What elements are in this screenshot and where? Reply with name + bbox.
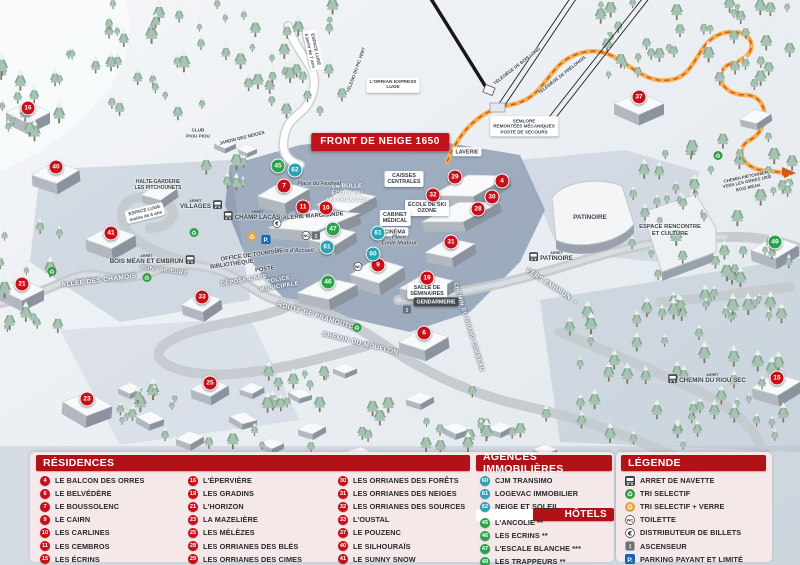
residence-label: LES ORRIANES DES NEIGES: [353, 489, 457, 498]
residence-number: 25: [188, 528, 198, 538]
wc-icon: WC: [354, 262, 363, 271]
agence-label: CJM TRANSIMO: [495, 476, 553, 485]
hotel-label: L'ANCOLIE **: [495, 518, 543, 527]
recycle-green-icon: ♻: [48, 267, 57, 276]
residence-label: LE SUNNY SNOW: [353, 555, 416, 564]
residence-number: 28: [188, 541, 198, 551]
elevator-icon: ↕: [312, 231, 321, 240]
residences-header: RÉSIDENCES: [36, 455, 470, 471]
residence-label: LES ORRIANES DES SOURCES: [353, 502, 465, 511]
legende-label: ASCENSEUR: [640, 542, 687, 551]
svg-text:♻: ♻: [249, 234, 255, 241]
map-elevator-icon: ↕: [403, 301, 412, 319]
map-marker-19: 19: [420, 271, 435, 286]
legende-item-tri-selectif: ♻TRI SELECTIF: [625, 488, 690, 499]
parking-icon: P.: [262, 235, 271, 244]
residence-label: LE BELVÉDÈRE: [55, 489, 112, 498]
legende-item-distributeur-de-billets: €DISTRIBUTEUR DE BILLETS: [625, 527, 741, 538]
map-label-semlore: SEMLOREREMONTÉES MÉCANIQUESPOSTE DE SECO…: [490, 116, 558, 136]
map-wc-icon: WC: [302, 227, 311, 245]
residence-number: 29: [188, 554, 198, 564]
residence-item-les-orrianes-des-neiges: 31LES ORRIANES DES NEIGES: [338, 488, 457, 499]
map-marker-15: 15: [770, 371, 785, 386]
svg-text:WC: WC: [303, 234, 309, 238]
bus-stop-patinoire: ARRÊTPATINOIRE: [529, 252, 573, 262]
map-label-patinoire: PATINOIRE: [573, 214, 607, 222]
svg-text:↕: ↕: [627, 544, 632, 551]
recycle-green-icon: ♻: [190, 228, 199, 237]
recycle-green-icon: ♻: [143, 273, 152, 282]
legende-item-arret-de-navette: ARRET DE NAVETTE: [625, 475, 714, 486]
bus-stop-name: VILLAGES: [180, 204, 211, 210]
bus-icon: [625, 476, 635, 486]
bus-stop-name: CHAMP LACAS: [235, 215, 281, 221]
residence-item-les-crins: 15LES ÉCRINS: [40, 554, 100, 565]
residence-item-le-silhoura-s: 40LE SILHOURAÏS: [338, 541, 411, 552]
map-marker-33: 33: [195, 290, 210, 305]
map-elevator-icon: ↕: [312, 227, 321, 245]
map-marker-21: 21: [15, 277, 30, 292]
map-marker-60: 60: [366, 247, 381, 262]
map-label-caisses: CAISSESCENTRALES: [385, 171, 424, 187]
legende-label: ARRET DE NAVETTE: [640, 476, 714, 485]
hotel-label: LES ECRINS **: [495, 531, 548, 540]
map-marker-41: 41: [104, 226, 119, 241]
agence-item-neige-et-soleil: 62NEIGE ET SOLEIL: [480, 501, 559, 512]
map-marker-29: 29: [448, 170, 463, 185]
legende-label: TRI SELECTIF: [640, 489, 690, 498]
wc-icon: WC: [302, 231, 311, 240]
residence-label: LES CEMBROS: [55, 542, 110, 551]
residence-number: 32: [338, 502, 348, 512]
residence-number: 31: [338, 489, 348, 499]
resort-map-page: FRONT DE NEIGE 1650 RÉSIDENCES AGENCES I…: [0, 0, 800, 565]
residence-label: LES ÉCRINS: [55, 555, 100, 564]
hotel-item-l-ancolie: 45L'ANCOLIE **: [480, 517, 543, 528]
residence-item-le-belv-d-re: 6LE BELVÉDÈRE: [40, 488, 112, 499]
agences-header: AGENCES IMMOBILIÈRES: [476, 455, 612, 471]
map-label-halte-garderie: HALTE-GARDERIELES PITCHOUNETS: [135, 179, 182, 191]
front-de-neige-banner: FRONT DE NEIGE 1650: [311, 133, 449, 151]
residence-number: 6: [40, 489, 50, 499]
map-marker-45: 45: [271, 159, 286, 174]
residence-label: LES CARLINES: [55, 528, 110, 537]
agence-label: LOGEVAC IMMOBILIER: [495, 489, 578, 498]
residence-item-les-orrianes-des-cimes: 29LES ORRIANES DES CIMES: [188, 554, 302, 565]
svg-text:WC: WC: [355, 265, 361, 269]
agence-number: 60: [480, 476, 490, 486]
hotel-item-les-trappeurs: 49LES TRAPPEURS **: [480, 556, 566, 565]
residence-number: 4: [40, 476, 50, 486]
residence-item-le-balcon-des-orres: 4LE BALCON DES ORRES: [40, 475, 144, 486]
map-recycle-green-icon: ♻: [353, 319, 362, 337]
bus-stop-name: BOIS MÉAN ET EMBRUN: [110, 259, 184, 265]
bus-stop-villages: ARRÊTVILLAGES: [180, 200, 222, 210]
legende-item-parking-payant-et-limit: P.PARKING PAYANT ET LIMITÉ: [625, 554, 743, 565]
residence-item-le-boussolenc: 7LE BOUSSOLENC: [40, 501, 119, 512]
map-label-place: PlaceÉmile Modout: [381, 235, 416, 248]
svg-text:WC: WC: [627, 517, 634, 522]
legende-item-toilette: WCTOILETTE: [625, 514, 676, 525]
svg-text:♻: ♻: [715, 153, 721, 160]
map-recycle-green-icon: ♻: [143, 269, 152, 287]
wc-icon: WC: [625, 515, 635, 525]
map-marker-11: 11: [296, 200, 311, 215]
residence-item-les-carlines: 10LES CARLINES: [40, 527, 110, 538]
map-label-cabinet: CABINETMÉDICAL: [380, 210, 411, 226]
svg-text:♻: ♻: [191, 230, 197, 237]
map-marker-61: 61: [371, 226, 386, 241]
legende-item-ascenseur: ↕ASCENSEUR: [625, 541, 687, 552]
legende-label: DISTRIBUTEUR DE BILLETS: [640, 528, 741, 537]
residence-number: 30: [338, 476, 348, 486]
svg-text:€: €: [274, 222, 279, 228]
residence-item-les-m-l-zes: 25LES MÉLÈZES: [188, 527, 255, 538]
map-marker-16: 16: [21, 101, 36, 116]
bus-icon: [224, 211, 233, 220]
map-marker-4: 4: [495, 174, 510, 189]
bus-icon: [668, 374, 677, 383]
residence-label: L'HORIZON: [203, 502, 244, 511]
agence-number: 62: [480, 502, 490, 512]
hotel-number: 45: [480, 518, 490, 528]
parking-icon: P.: [625, 554, 635, 564]
residence-item-l-pervi-re: 16L'ÉPERVIÈRE: [188, 475, 252, 486]
recycle-green-icon: ♻: [353, 323, 362, 332]
recycle-green-icon: ♻: [714, 151, 723, 160]
map-label-place-du-festival: Place du Festival: [297, 181, 341, 187]
map-marker-62: 62: [288, 163, 303, 178]
residence-item-les-cembros: 11LES CEMBROS: [40, 541, 110, 552]
map-parking-icon: P.: [262, 231, 271, 249]
map-recycle-green-icon: ♻: [190, 224, 199, 242]
svg-text:P.: P.: [627, 557, 633, 564]
elevator-icon: ↕: [625, 541, 635, 551]
bus-stop-chemin-du-riou-sec: ARRÊTCHEMIN DU RIOU SEC: [668, 374, 746, 384]
map-label-club: CLUBPIOU PIOU: [186, 128, 210, 139]
bus-icon: [213, 200, 222, 209]
legende-header: LÉGENDE: [621, 455, 766, 471]
map-label-gendarmerie: GENDARMERIE: [414, 297, 459, 306]
hotel-number: 46: [480, 531, 490, 541]
map-marker-37: 37: [632, 90, 647, 105]
map-label-l-orrian-express: L'ORRIAN EXPRESSLUGE: [367, 78, 420, 93]
svg-text:♻: ♻: [354, 325, 360, 332]
hotel-label: L'ESCALE BLANCHE ***: [495, 544, 581, 553]
agence-item-logevac-immobilier: 61LOGEVAC IMMOBILIER: [480, 488, 578, 499]
residence-label: LES GRADINS: [203, 489, 254, 498]
residence-number: 37: [338, 528, 348, 538]
residence-number: 23: [188, 515, 198, 525]
map-marker-40: 40: [49, 160, 64, 175]
residences-title: RÉSIDENCES: [43, 457, 114, 469]
map-marker-30: 30: [485, 190, 500, 205]
map-recycle-green-icon: ♻: [714, 147, 723, 165]
residence-number: 40: [338, 541, 348, 551]
residence-label: LE CAIRN: [55, 515, 90, 524]
map-wc-icon: WC: [354, 258, 363, 276]
svg-text:♻: ♻: [144, 275, 150, 282]
map-marker-25: 25: [203, 376, 218, 391]
map-recycle-yellow-icon: ♻: [248, 228, 257, 246]
agence-label: NEIGE ET SOLEIL: [495, 502, 559, 511]
residence-number: 9: [40, 515, 50, 525]
agences-title: AGENCES IMMOBILIÈRES: [483, 451, 605, 475]
bus-stop-name: PATINOIRE: [540, 256, 573, 262]
svg-text:€: €: [627, 530, 632, 537]
map-label-espace-rencontre: ESPACE RENCONTREET CULTURE: [639, 224, 701, 238]
svg-text:P.: P.: [264, 237, 269, 244]
residence-number: 21: [188, 502, 198, 512]
hotel-item-l-escale-blanche: 47L'ESCALE BLANCHE ***: [480, 543, 581, 554]
residence-number: 16: [188, 476, 198, 486]
bus-stop-bois-m-an-et-embrun: ARRÊTBOIS MÉAN ET EMBRUN: [110, 255, 195, 265]
residence-number: 10: [40, 528, 50, 538]
hotel-number: 49: [480, 557, 490, 565]
residence-number: 15: [40, 554, 50, 564]
residence-label: LE BOUSSOLENC: [55, 502, 119, 511]
bus-stop-name: CHEMIN DU RIOU SEC: [679, 378, 746, 384]
residence-item-les-orrianes-des-for-ts: 30LES ORRIANES DES FORÊTS: [338, 475, 459, 486]
residence-item-les-orrianes-des-bl-s: 28LES ORRIANES DES BLÉS: [188, 541, 298, 552]
map-marker-10: 10: [319, 201, 334, 216]
map-marker-28: 28: [471, 202, 486, 217]
hotel-item-les-ecrins: 46LES ECRINS **: [480, 530, 548, 541]
residence-label: L'OUSTAL: [353, 515, 389, 524]
residence-number: 19: [188, 489, 198, 499]
residence-item-les-orrianes-des-sources: 32LES ORRIANES DES SOURCES: [338, 501, 465, 512]
map-marker-23: 23: [80, 392, 95, 407]
residence-label: LES ORRIANES DES FORÊTS: [353, 476, 459, 485]
recycle-yellow-icon: ♻: [248, 232, 257, 241]
legende-item-tri-selectif-verre: ♻TRI SELECTIF + VERRE: [625, 501, 725, 512]
residence-item-la-mazeli-re: 23LA MAZELIÈRE: [188, 514, 258, 525]
legende-label: TOILETTE: [640, 515, 676, 524]
map-marker-61: 61: [320, 240, 335, 255]
hotels-title: HÔTELS: [565, 509, 607, 520]
legende-title: LÉGENDE: [628, 457, 681, 469]
residence-number: 11: [40, 541, 50, 551]
map-label-laverie: LAVERIE: [453, 147, 482, 156]
svg-text:♻: ♻: [627, 490, 633, 498]
residence-item-l-oustal: 33L'OUSTAL: [338, 514, 389, 525]
svg-text:↕: ↕: [314, 234, 319, 240]
residence-label: LES ORRIANES DES BLÉS: [203, 542, 298, 551]
agence-number: 61: [480, 489, 490, 499]
residence-number: 41: [338, 554, 348, 564]
residence-label: L'ÉPERVIÈRE: [203, 476, 252, 485]
bus-icon: [185, 255, 194, 264]
elevator-icon: ↕: [403, 305, 412, 314]
recycle-green-icon: ♻: [625, 489, 635, 499]
map-recycle-green-icon: ♻: [48, 263, 57, 281]
residence-item-le-pouzenc: 37LE POUZENC: [338, 527, 401, 538]
eur-icon: €: [625, 528, 635, 538]
agence-item-cjm-transimo: 60CJM TRANSIMO: [480, 475, 553, 486]
residence-number: 33: [338, 515, 348, 525]
residence-label: LE SILHOURAÏS: [353, 542, 411, 551]
legende-label: TRI SELECTIF + VERRE: [640, 502, 725, 511]
bus-stop-champ-lacas: ARRÊTCHAMP LACAS: [224, 211, 281, 221]
residence-label: LES MÉLÈZES: [203, 528, 255, 537]
residence-item-le-cairn: 9LE CAIRN: [40, 514, 90, 525]
map-marker-6: 6: [417, 326, 432, 341]
residence-label: LE POUZENC: [353, 528, 401, 537]
bus-icon: [529, 252, 538, 261]
svg-text:♻: ♻: [49, 269, 55, 276]
residence-label: LA MAZELIÈRE: [203, 515, 258, 524]
residence-number: 7: [40, 502, 50, 512]
legende-label: PARKING PAYANT ET LIMITÉ: [640, 555, 743, 564]
map-marker-49: 49: [768, 235, 783, 250]
recycle-yellow-icon: ♻: [625, 502, 635, 512]
residence-label: LES ORRIANES DES CIMES: [203, 555, 302, 564]
hotel-label: LES TRAPPEURS **: [495, 557, 566, 565]
map-label-cole-de-ski: ÉCOLE DE SKIOZONE: [405, 200, 449, 216]
residence-item-les-gradins: 19LES GRADINS: [188, 488, 254, 499]
map-marker-46: 46: [321, 275, 336, 290]
map-marker-47: 47: [326, 222, 341, 237]
residence-item-l-horizon: 21L'HORIZON: [188, 501, 244, 512]
svg-text:♻: ♻: [627, 503, 633, 511]
map-marker-7: 7: [277, 179, 292, 194]
map-marker-31: 31: [444, 235, 459, 250]
residence-item-le-sunny-snow: 41LE SUNNY SNOW: [338, 554, 416, 565]
residence-label: LE BALCON DES ORRES: [55, 476, 144, 485]
map-marker-32: 32: [426, 188, 441, 203]
hotel-number: 47: [480, 544, 490, 554]
svg-text:↕: ↕: [405, 308, 410, 314]
